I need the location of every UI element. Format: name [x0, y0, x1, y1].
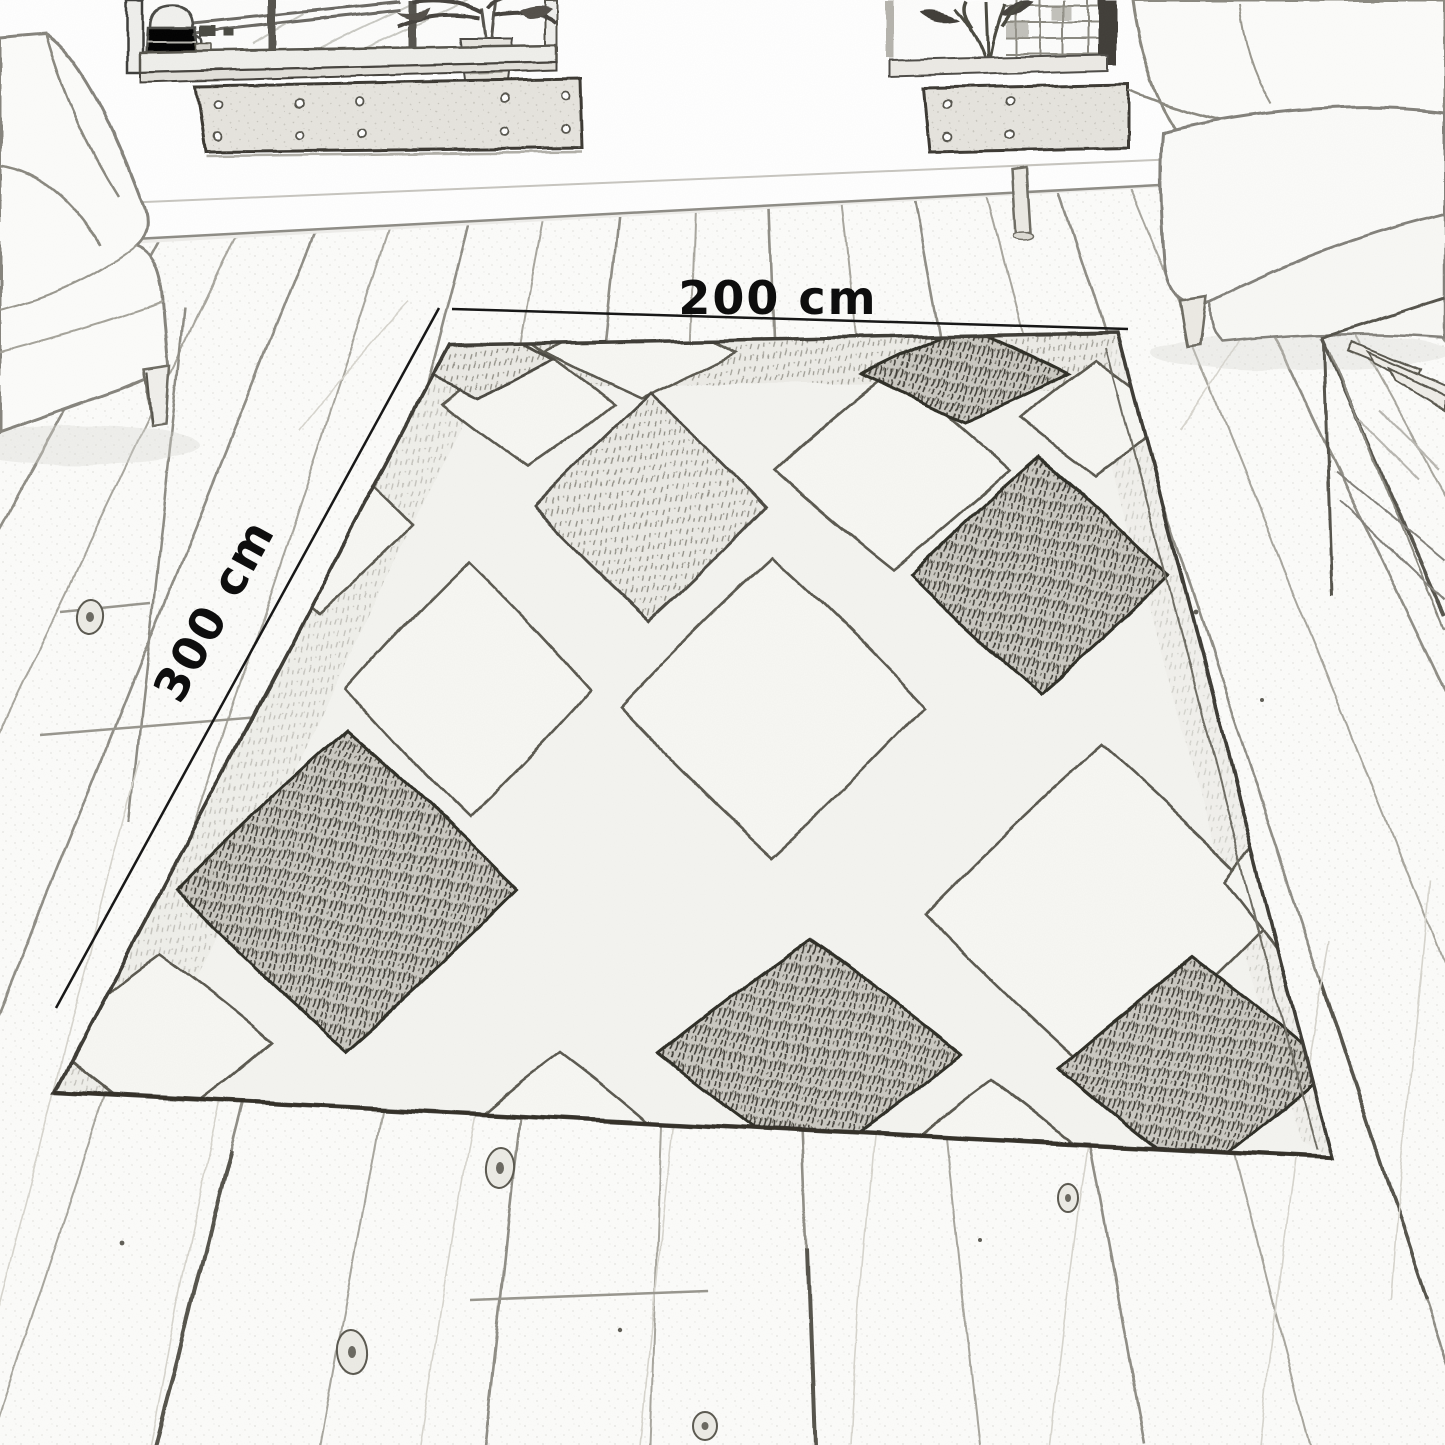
sketch-canvas: 200 cm 300 cm [0, 0, 1445, 1445]
paper-grain-overlay [0, 0, 1445, 1445]
sketch-room-scene: 200 cm 300 cm [0, 0, 1445, 1445]
